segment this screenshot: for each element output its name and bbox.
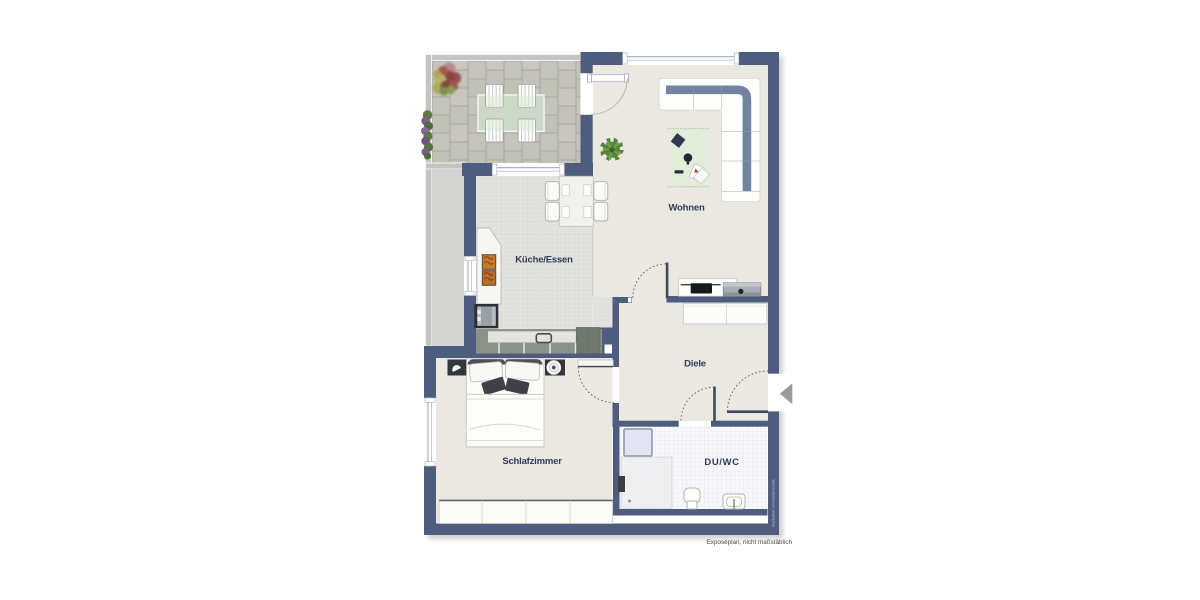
svg-text:DU/WC: DU/WC <box>704 457 739 468</box>
svg-text:Wohnen: Wohnen <box>668 203 704 214</box>
svg-text:Illustration: ImmobilienGrafik: Illustration: ImmobilienGrafik <box>772 479 776 527</box>
svg-text:Exposéplan, nicht maßstäblich: Exposéplan, nicht maßstäblich <box>707 539 793 546</box>
svg-text:Diele: Diele <box>684 359 706 370</box>
svg-text:Schlafzimmer: Schlafzimmer <box>502 456 562 467</box>
svg-text:Küche/Essen: Küche/Essen <box>515 255 573 266</box>
